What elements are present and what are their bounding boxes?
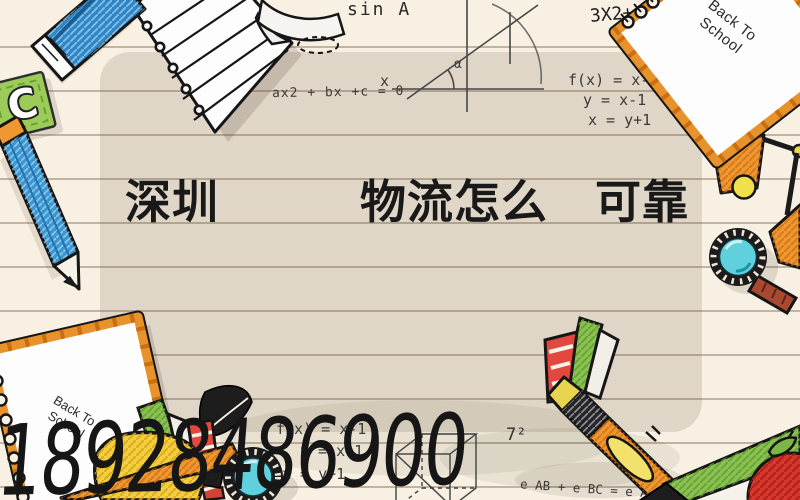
phone-number: 18928486900	[0, 393, 471, 500]
blue-pencil-icon	[0, 116, 79, 289]
blue-book-icon	[32, 0, 145, 84]
page-title: 深圳 物流怎么 可靠	[125, 166, 689, 232]
axis-diagram	[392, 0, 544, 112]
ruled-paper-background: sin A x α ax2 + bx +c = 0 3X2+ f(x) = x-…	[0, 0, 800, 500]
